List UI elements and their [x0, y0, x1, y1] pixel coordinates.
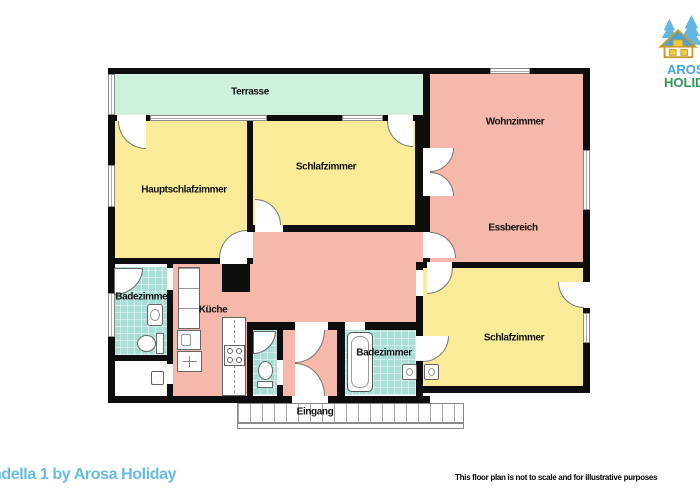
room-label-schlafzimmer-oben: Schlafzimmer — [296, 162, 356, 173]
window — [583, 313, 590, 343]
kitchen-sink-basin — [181, 334, 191, 346]
eingang-deck-rim — [237, 423, 464, 429]
toilet-tank — [156, 333, 164, 354]
room-label-kueche: Küche — [199, 305, 228, 316]
sink-basin — [150, 309, 160, 321]
room-label-hauptschlafzimmer: Hauptschlafzimmer — [141, 185, 226, 196]
wall-sz-oben-right — [415, 115, 423, 232]
kitchen-unit — [177, 351, 202, 372]
window — [108, 293, 115, 337]
room-label-schlafzimmer-unten: Schlafzimmer — [484, 333, 544, 344]
sink-basin — [428, 368, 435, 376]
stove-burner — [236, 348, 242, 354]
stove-burner — [227, 357, 233, 363]
wall-bottom-right — [420, 386, 590, 393]
logo: AROSA HOLIDAY — [648, 14, 700, 94]
kitchen-cabinets — [178, 267, 200, 329]
door-gap — [277, 360, 283, 385]
small-sink — [151, 371, 164, 385]
room-label-wohnzimmer: Wohnzimmer — [486, 117, 545, 128]
wall-vestibule-right — [337, 330, 345, 396]
logo-brand-line2: HOLIDAY — [664, 75, 700, 90]
window — [150, 115, 267, 121]
wall-bad-links-bottom — [108, 355, 173, 361]
window — [342, 115, 383, 121]
room-label-terrasse: Terrasse — [231, 87, 269, 98]
window — [108, 165, 115, 207]
wall-kueche-stub — [222, 264, 250, 292]
stove-burner — [227, 348, 233, 354]
property-title: ndella 1 by Arosa Holiday — [0, 466, 176, 484]
door-gap — [167, 364, 173, 384]
logo-trees-cabin-icon — [652, 14, 700, 62]
window — [490, 68, 530, 74]
window — [583, 150, 590, 210]
wall-hsz-right — [247, 115, 253, 232]
door-gap — [583, 282, 590, 308]
door-gap — [416, 336, 423, 361]
disclaimer-text: This floor plan is not to scale and for … — [455, 473, 657, 482]
door-gap — [220, 258, 247, 264]
room-schlafzimmer-oben — [253, 121, 415, 225]
toilet — [258, 361, 273, 380]
eingang-deck — [237, 403, 464, 423]
room-label-eingang: Eingang — [297, 407, 334, 418]
door-gap — [416, 270, 423, 296]
door-gap — [423, 232, 430, 258]
room-label-badezimmer-links: Badezimmer — [115, 292, 170, 303]
door-gap — [167, 268, 173, 290]
wall-right — [583, 68, 590, 393]
room-corridor — [253, 232, 423, 330]
room-label-essbereich: Essbereich — [488, 223, 537, 234]
room-label-badezimmer-unten: Badezimmer — [356, 348, 411, 359]
wall-left — [108, 68, 115, 403]
sink-basin — [406, 368, 413, 376]
floorplan-page: { "rooms": { "terrasse": "Terrasse", "ha… — [0, 0, 700, 500]
door-gap — [423, 148, 430, 196]
room-wohnzimmer-essbereich — [430, 74, 583, 262]
door-gap — [345, 322, 365, 330]
bathtub-inner — [351, 336, 369, 388]
wall-bottom-left — [108, 396, 430, 403]
door-gap — [295, 322, 328, 330]
toilet — [137, 335, 156, 352]
stove-burner — [236, 357, 242, 363]
door-gap — [292, 396, 328, 403]
toilet-tank — [257, 381, 273, 388]
terrace-railing — [108, 74, 115, 115]
door-gap — [255, 225, 283, 232]
